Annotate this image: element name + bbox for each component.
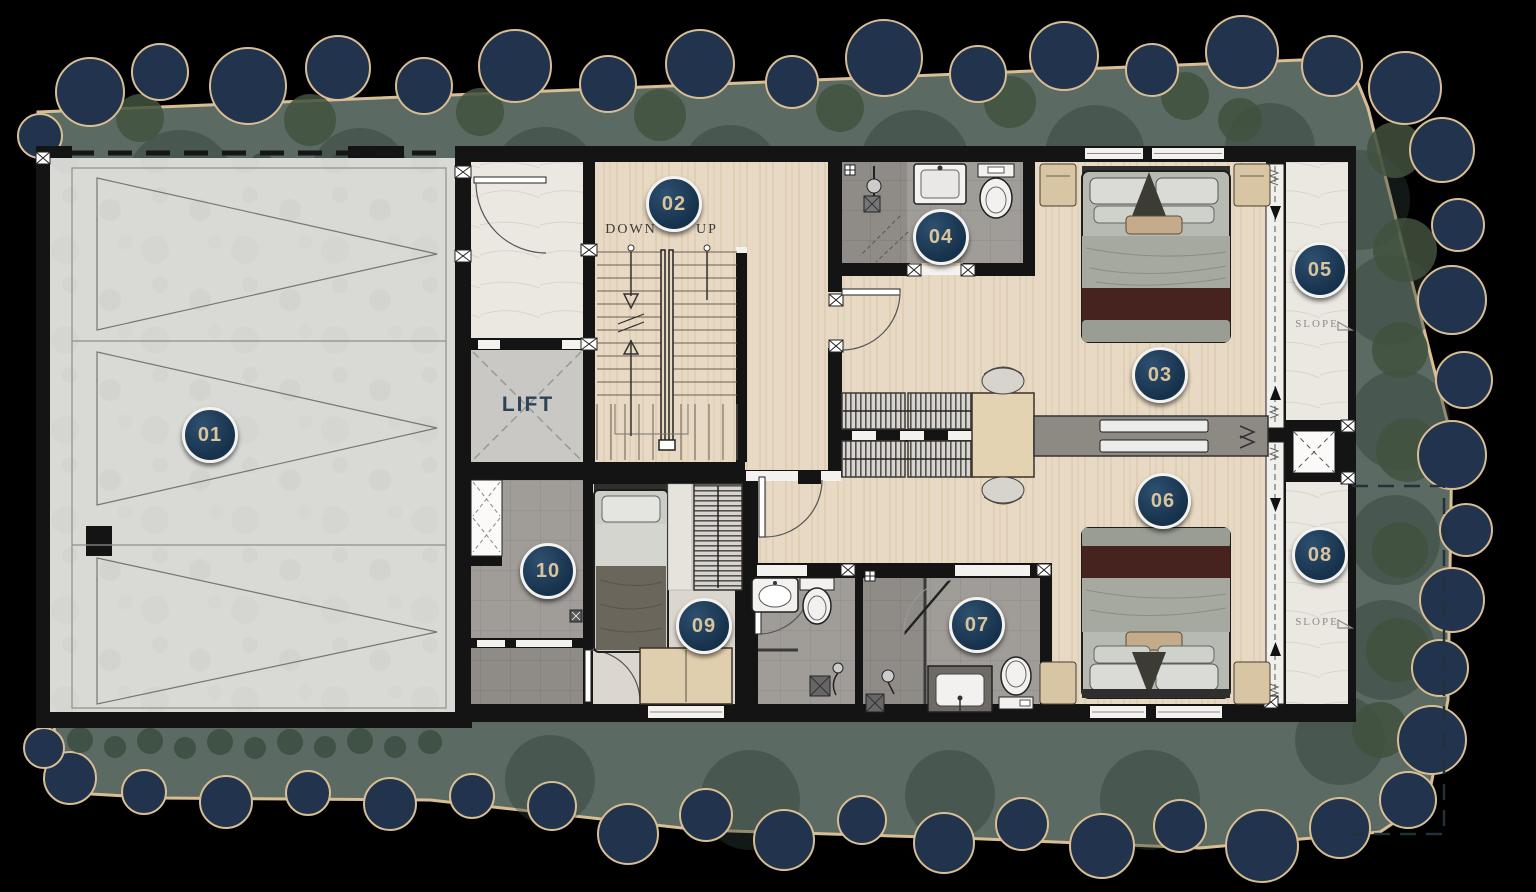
badge-number: 06 bbox=[1151, 490, 1175, 513]
bed-runner bbox=[1082, 546, 1230, 580]
nightstand bbox=[1040, 164, 1076, 206]
badge-number: 04 bbox=[929, 226, 953, 249]
room-badge-08: 08 bbox=[1292, 527, 1348, 583]
room-badge-07: 07 bbox=[949, 597, 1005, 653]
bed-runner bbox=[1082, 288, 1230, 322]
tv-icon bbox=[1100, 440, 1208, 452]
accent-pillow bbox=[1126, 216, 1182, 234]
room-badge-01: 01 bbox=[182, 407, 238, 463]
floor-plan-canvas: LIFT DOWN UP SLOPE SLOPE 01 02 03 04 05 … bbox=[0, 0, 1536, 892]
badge-number: 09 bbox=[692, 615, 716, 638]
garage-column bbox=[86, 526, 112, 556]
room-badge-02: 02 bbox=[646, 176, 702, 232]
garage-floor bbox=[50, 158, 455, 712]
room-10-lower-floor bbox=[471, 648, 583, 704]
badge-number: 07 bbox=[965, 614, 989, 637]
closet-shaft bbox=[471, 480, 502, 556]
badge-number: 08 bbox=[1308, 544, 1332, 567]
terrace-08-floor bbox=[1286, 482, 1348, 704]
pillow bbox=[1156, 178, 1218, 204]
room-badge-04: 04 bbox=[913, 209, 969, 265]
tv-icon bbox=[1100, 420, 1208, 432]
slope-label-terrace-05: SLOPE bbox=[1288, 318, 1346, 330]
chair bbox=[982, 368, 1024, 394]
slope-label-terrace-08: SLOPE bbox=[1288, 616, 1346, 628]
badge-number: 05 bbox=[1308, 259, 1332, 282]
lift-label: LIFT bbox=[495, 393, 561, 417]
bathroom-07-shower-floor bbox=[863, 578, 925, 704]
nightstand bbox=[1234, 662, 1270, 704]
toilet-icon bbox=[1001, 657, 1031, 695]
shower-head-icon bbox=[867, 179, 881, 193]
badge-number: 10 bbox=[536, 560, 560, 583]
badge-number: 02 bbox=[662, 193, 686, 216]
nightstand bbox=[1234, 164, 1270, 206]
room-badge-06: 06 bbox=[1135, 473, 1191, 529]
stair-hall-floor bbox=[595, 162, 828, 470]
room-badge-05: 05 bbox=[1292, 242, 1348, 298]
pillow bbox=[1156, 664, 1218, 690]
badge-number: 03 bbox=[1148, 364, 1172, 387]
room-badge-10: 10 bbox=[520, 543, 576, 599]
bed-headboard bbox=[1082, 689, 1230, 698]
shower-head-icon bbox=[882, 670, 894, 682]
chair bbox=[982, 477, 1024, 503]
pillow bbox=[602, 496, 660, 522]
room-badge-03: 03 bbox=[1132, 347, 1188, 403]
nightstand bbox=[1040, 662, 1076, 704]
badge-number: 01 bbox=[198, 424, 222, 447]
room-badge-09: 09 bbox=[676, 598, 732, 654]
desk bbox=[972, 393, 1034, 477]
